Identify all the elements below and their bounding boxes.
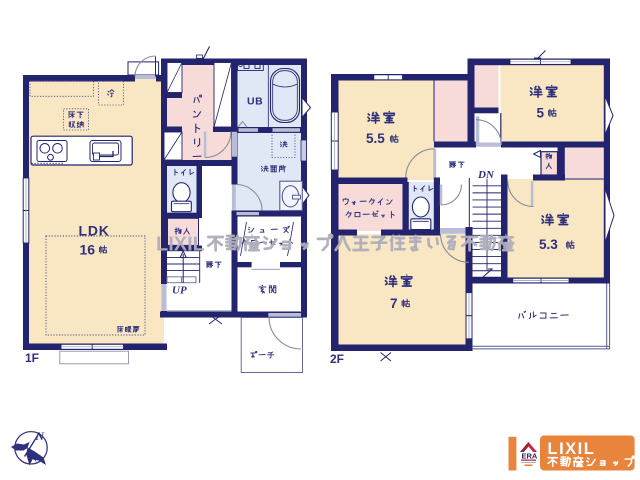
svg-text:UB: UB <box>247 96 263 108</box>
svg-text:DN: DN <box>477 169 495 181</box>
svg-text:N: N <box>35 429 46 443</box>
svg-text:5.3: 5.3 <box>539 237 558 252</box>
svg-text:UP: UP <box>172 285 187 297</box>
svg-text:2F: 2F <box>330 352 344 366</box>
svg-text:LIXIL: LIXIL <box>156 234 205 256</box>
svg-text:16: 16 <box>80 242 96 258</box>
svg-text:5: 5 <box>537 106 545 121</box>
svg-text:1F: 1F <box>25 351 39 365</box>
svg-text:5.5: 5.5 <box>366 131 385 146</box>
svg-text:7: 7 <box>390 296 398 311</box>
svg-text:LIXIL: LIXIL <box>548 440 596 458</box>
svg-text:ERA: ERA <box>522 452 538 461</box>
